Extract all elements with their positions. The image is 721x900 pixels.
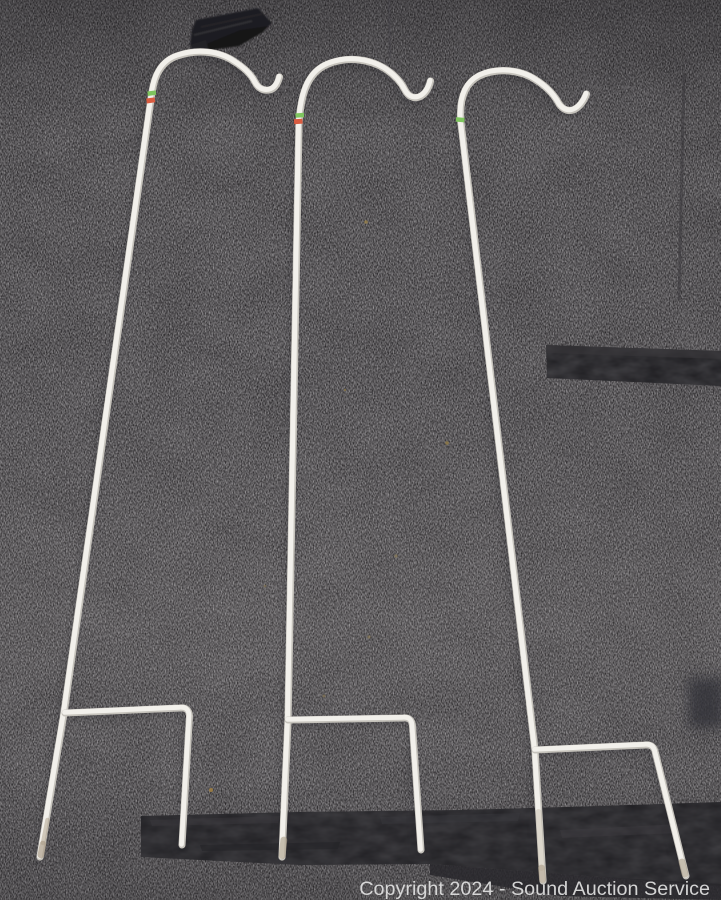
svg-text:Copyright 2024 - Sound Auction: Copyright 2024 - Sound Auction Service <box>359 878 710 900</box>
